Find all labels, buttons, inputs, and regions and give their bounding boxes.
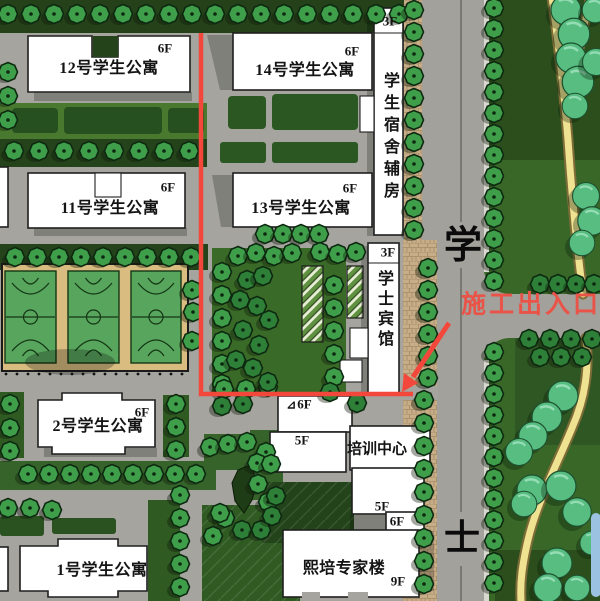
building-label-hotel: 学士宾馆 — [375, 270, 391, 350]
construction-entrance-annotation: 施工出入口 — [461, 293, 600, 318]
building-label-apt11: 11号学生公寓 — [61, 201, 160, 217]
floor-label-training-bottom: 6F — [390, 515, 404, 528]
building-label-apt13: 13号学生公寓 — [251, 201, 351, 217]
building-label-training: 培训中心 — [347, 443, 407, 458]
floor-label-apt11: 6F — [161, 181, 175, 194]
basketball-courts — [2, 264, 188, 375]
floor-label-apt13: 6F — [343, 182, 357, 195]
building-label-apt12: 12号学生公寓 — [59, 61, 159, 77]
site-plan-map: 12号学生公寓 6F 14号学生公寓 6F 11号学生公寓 6F 13号学生公寓… — [0, 0, 600, 601]
floor-label-apt14: 6F — [345, 45, 359, 58]
building-label-apt1: 1号学生公寓 — [56, 563, 147, 579]
building-label-expert: 熙培专家楼 — [303, 561, 386, 577]
floor-label-training-low: 5F — [375, 500, 389, 513]
road-name-char-top: 学 — [444, 227, 482, 265]
building-label-apt2: 2号学生公寓 — [52, 419, 143, 435]
floor-label-dorm-aux: 3F — [383, 15, 397, 28]
water-edge — [591, 513, 600, 597]
entrance-triangle-mark: ⊿ — [286, 398, 296, 412]
floor-label-hotel: 3F — [381, 246, 395, 259]
floor-label-training-mid: 5F — [295, 434, 309, 447]
road-name-char-bottom: 士 — [444, 520, 480, 556]
floor-label-training-top: ⊿6F — [286, 398, 312, 411]
building-label-apt14: 14号学生公寓 — [255, 63, 355, 79]
floor-label-expert: 9F — [391, 575, 405, 588]
floor-label-apt2: 6F — [135, 406, 149, 419]
floor-label-apt12: 6F — [158, 42, 172, 55]
building-label-dorm-aux: 学生宿舍辅房 — [381, 72, 397, 204]
